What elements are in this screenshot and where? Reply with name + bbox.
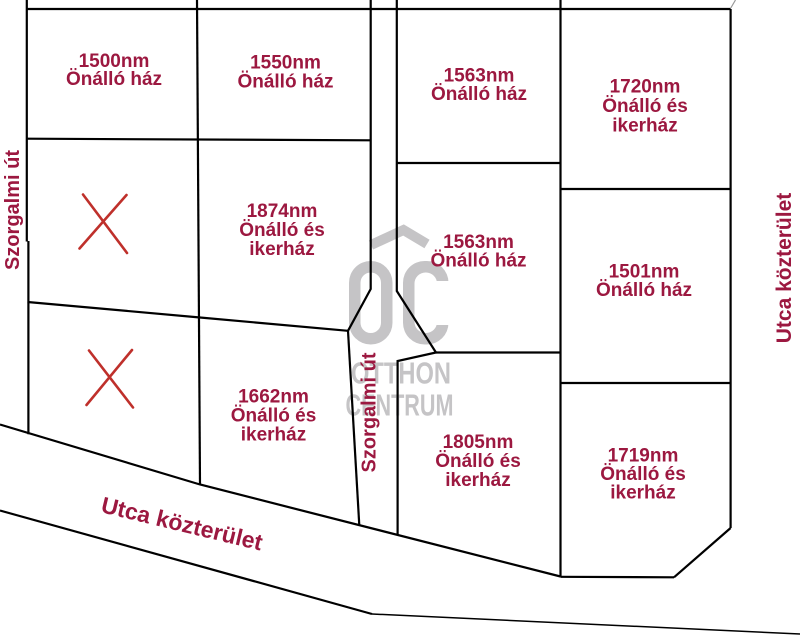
svg-text:1720nm: 1720nm	[610, 77, 681, 98]
svg-text:Önálló és: Önálló és	[602, 96, 688, 117]
svg-text:1662nm: 1662nm	[238, 387, 309, 408]
svg-text:ikerház: ikerház	[612, 115, 677, 136]
svg-text:Önálló ház: Önálló ház	[66, 69, 162, 90]
svg-text:Szorgalmi út: Szorgalmi út	[2, 150, 24, 270]
svg-text:Szorgalmi út: Szorgalmi út	[359, 352, 381, 472]
svg-text:Önálló ház: Önálló ház	[430, 251, 526, 272]
svg-text:1805nm: 1805nm	[443, 432, 514, 453]
svg-text:ikerház: ikerház	[445, 470, 510, 491]
svg-text:ikerház: ikerház	[249, 239, 314, 260]
svg-text:Önálló és: Önálló és	[231, 406, 317, 427]
svg-text:Önálló ház: Önálló ház	[596, 280, 692, 301]
svg-text:1874nm: 1874nm	[247, 201, 318, 222]
svg-text:Önálló és: Önálló és	[435, 451, 521, 472]
svg-text:Önálló ház: Önálló ház	[431, 84, 527, 105]
svg-text:ikerház: ikerház	[241, 425, 306, 446]
svg-text:ikerház: ikerház	[610, 482, 675, 503]
svg-text:Önálló ház: Önálló ház	[237, 71, 333, 92]
svg-text:Önálló és: Önálló és	[239, 220, 325, 241]
svg-text:Utca közterület: Utca közterület	[773, 193, 796, 344]
